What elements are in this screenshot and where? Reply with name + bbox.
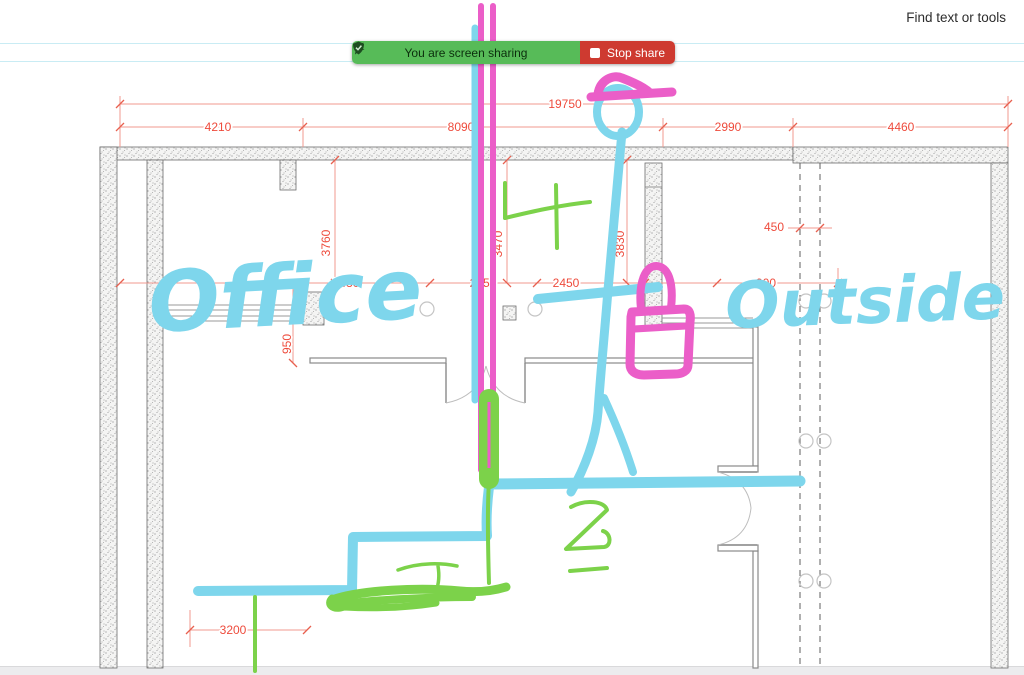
- dimension-label: 3200: [220, 623, 247, 637]
- dimension-lines: [120, 96, 1008, 647]
- shield-check-icon: [352, 41, 365, 55]
- dimension-label: 450: [764, 220, 784, 234]
- green-thin-vertical: [488, 481, 489, 583]
- green-number-doodle: [566, 502, 610, 571]
- office-handwriting: Office: [146, 240, 425, 352]
- pink-hat-doodle: [591, 77, 672, 97]
- dashed-reference-lines: [800, 163, 820, 667]
- dimension-label: 4210: [205, 120, 232, 134]
- wall-left-outer: [100, 147, 117, 668]
- cyan-route-doodle: [198, 481, 800, 591]
- screen-sharing-label: You are screen sharing: [362, 46, 570, 60]
- outside-handwriting: Outside: [724, 260, 1006, 344]
- door-swing-arc: [718, 508, 751, 545]
- wall-divider: [645, 163, 662, 327]
- interior-walls: [310, 327, 758, 668]
- screen-sharing-banner: You are screen sharing Stop share: [352, 41, 675, 64]
- stick-figure-leg: [604, 398, 633, 472]
- dimension-labels: 1975042108090299044603760347038302430245…: [205, 97, 915, 637]
- stop-share-label: Stop share: [607, 46, 665, 60]
- screen-sharing-message-section: You are screen sharing: [352, 41, 580, 64]
- dimension-ticks: [116, 100, 1012, 634]
- wall-pier: [280, 160, 296, 190]
- wall-top-right: [793, 147, 1008, 163]
- floor-plan-svg: 1975042108090299044603760347038302430245…: [0, 0, 1024, 675]
- wall-left-inner: [147, 160, 163, 668]
- cyan-horizontal-line: [490, 481, 800, 484]
- dimension-label: 2450: [553, 276, 580, 290]
- cyan-stepped-route: [198, 487, 489, 591]
- green-cross-doodle: [556, 185, 557, 248]
- dimension-label: 8090: [448, 120, 475, 134]
- wall-top-left: [100, 147, 793, 160]
- wall-right: [991, 163, 1008, 668]
- dimension-label: 19750: [548, 97, 582, 111]
- stop-square-icon: [590, 48, 600, 58]
- stick-figure-body: [571, 132, 622, 492]
- dimension-label: 4460: [888, 120, 915, 134]
- stop-share-button[interactable]: Stop share: [580, 41, 675, 64]
- wall-pier: [503, 306, 516, 320]
- dimension-label: 2990: [715, 120, 742, 134]
